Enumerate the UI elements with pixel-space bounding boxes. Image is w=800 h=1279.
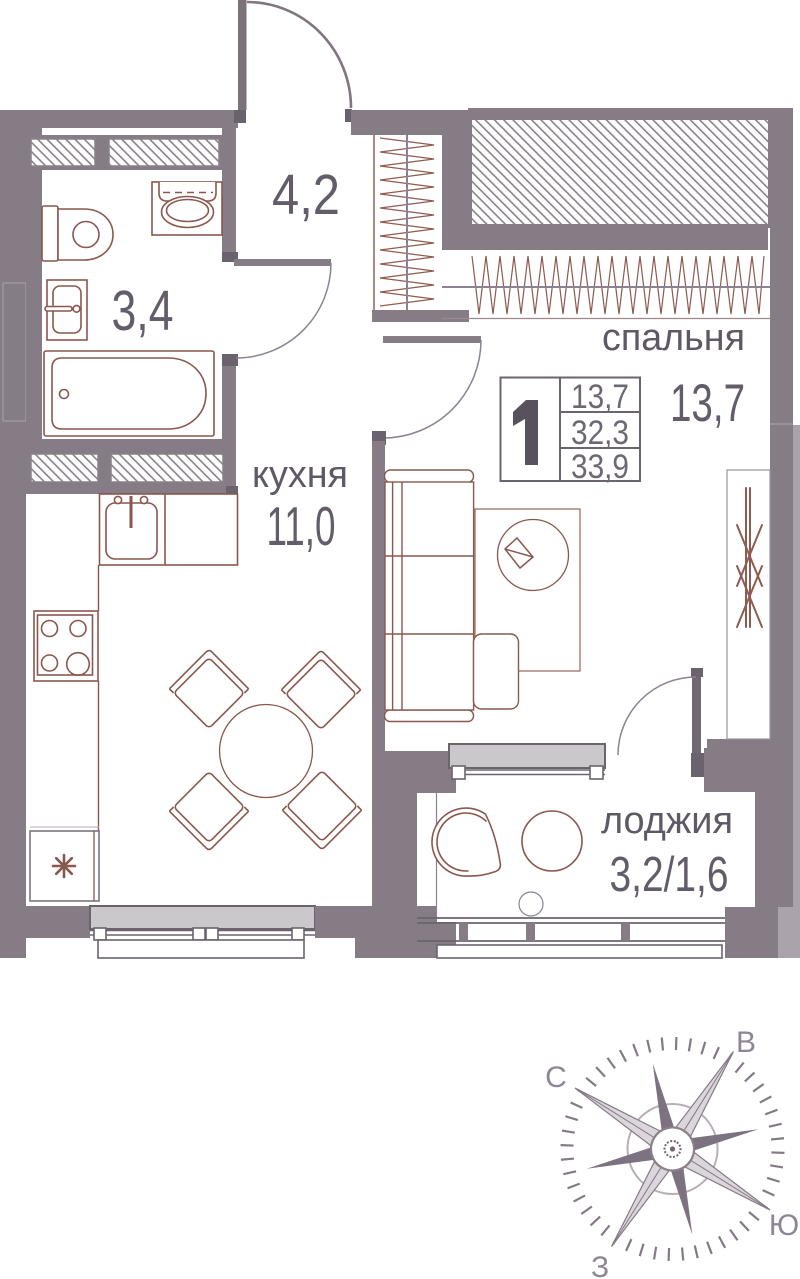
svg-text:лоджия: лоджия: [601, 800, 733, 842]
svg-text:11,0: 11,0: [267, 495, 336, 557]
svg-text:33,9: 33,9: [571, 448, 629, 486]
svg-text:спальня: спальня: [602, 317, 745, 359]
svg-text:3,2/1,6: 3,2/1,6: [610, 848, 729, 902]
svg-text:13,7: 13,7: [571, 378, 629, 416]
svg-text:В: В: [736, 1026, 756, 1059]
svg-text:С: С: [545, 1061, 567, 1094]
svg-text:32,3: 32,3: [571, 414, 629, 452]
svg-text:4,2: 4,2: [272, 163, 340, 227]
svg-text:кухня: кухня: [252, 454, 348, 496]
svg-text:Ю: Ю: [769, 1209, 799, 1242]
svg-text:З: З: [591, 1251, 609, 1279]
svg-text:3,4: 3,4: [112, 279, 174, 343]
svg-text:13,7: 13,7: [670, 374, 745, 433]
